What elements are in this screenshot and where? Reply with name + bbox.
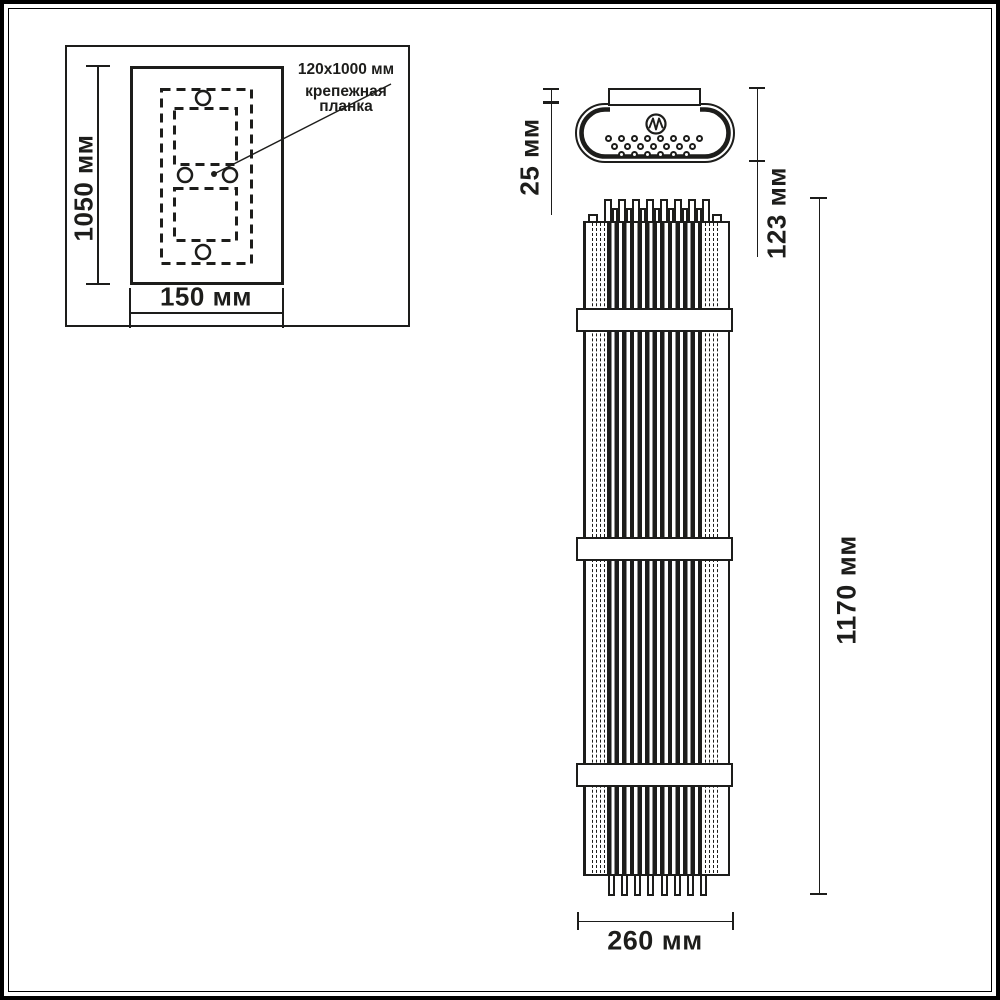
dim-150-label: 150 мм [160,282,252,313]
dim-1050-tick-bottom [86,283,110,286]
dim-150-tick-left [129,288,131,328]
crown-rod-tall [702,199,710,223]
crystal-rod-dot [670,135,677,142]
bottom-rod [647,874,654,896]
dim-123-label: 123 мм [762,167,793,259]
top-view-bracket-plate [609,89,700,105]
crystal-rod-dot [618,135,625,142]
dim-1170-tick-bottom [810,893,827,896]
dim-260-label: 260 мм [607,926,703,957]
crystal-rod-dot [670,151,677,158]
dim-1050-tick-top [86,65,110,68]
mounting-hole [196,245,210,259]
lamp-socket-icon [647,115,666,134]
crystal-rod-dot [683,135,690,142]
collar-band-middle [576,537,733,561]
annotation-word-2: планка [281,99,411,114]
annotation-size: 120x1000 мм [281,62,411,77]
dim-25-tick-bottom [543,101,559,104]
crown-rod-tall [660,199,668,223]
dim-1170-label: 1170 мм [832,535,863,645]
top-view-ring-gap-mask [610,106,700,115]
crystal-rod-dot [683,151,690,158]
crystal-rod-dot [644,151,651,158]
dim-123-tick-top [749,87,765,90]
bottom-rod [634,874,641,896]
crystal-rod-dot [696,135,703,142]
crown-rod-tall [632,199,640,223]
dim-1050-label: 1050 мм [69,134,100,241]
lamp-body-bottom-edge [583,874,730,877]
dim-25-tick-top [543,88,559,91]
collar-band-top [576,308,733,332]
dim-260-line [578,921,733,923]
annotation: 120x1000 мм крепежная планка [281,62,411,114]
crystal-rod-dot [605,135,612,142]
top-view-drawing [575,88,735,164]
bottom-rod [608,874,615,896]
collar-band-bottom [576,763,733,787]
drawing-canvas: 120x1000 мм крепежная планка 1050 мм 150… [0,0,1000,1000]
dim-25-line [551,89,553,215]
mounting-hole [223,168,237,182]
bottom-rod [621,874,628,896]
crown-rod-tall [618,199,626,223]
crown-rod-tall [674,199,682,223]
crown-rod-tall [688,199,696,223]
crystal-rod-dot [689,143,696,150]
dim-1170-line [819,198,821,894]
mounting-hole [196,91,210,105]
crystal-rod-dot [650,143,657,150]
crystal-rod-dot [631,135,638,142]
crown-rod-tall [604,199,612,223]
crystal-rod-dot [618,151,625,158]
crystal-rod-dot [663,143,670,150]
annotation-word-1: крепежная [281,84,411,99]
dim-260-tick-left [577,912,579,930]
dim-150-tick-right [282,288,284,328]
crystal-rod-dot [657,135,664,142]
crystal-rod-dot [611,143,618,150]
crystal-rod-dot [637,143,644,150]
bottom-rod [661,874,668,896]
bottom-rod [674,874,681,896]
crystal-rod-dot [631,151,638,158]
crystal-rod-dot [676,143,683,150]
dim-123-line [757,88,759,257]
dim-25-label: 25 мм [515,118,546,195]
dim-123-tick-bottom [749,160,765,163]
crystal-rod-dot [624,143,631,150]
crystal-rod-dot [644,135,651,142]
bottom-rod [687,874,694,896]
dim-260-tick-right [732,912,734,930]
mounting-hole [178,168,192,182]
crystal-rod-dot [657,151,664,158]
bottom-rod [700,874,707,896]
crown-rod-tall [646,199,654,223]
dim-1170-tick-top [810,197,827,200]
